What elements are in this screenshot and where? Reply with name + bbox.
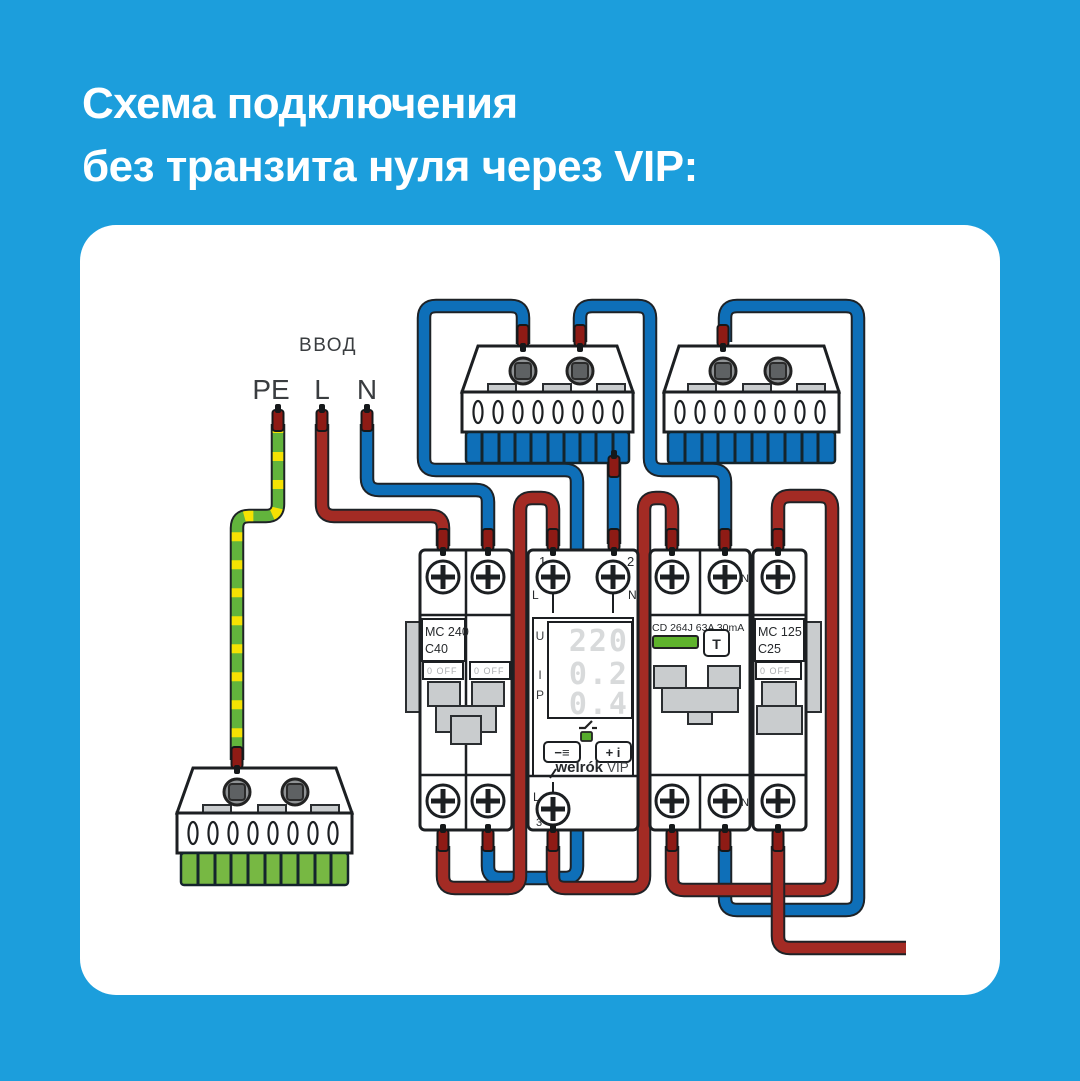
vip-p-label: P bbox=[536, 688, 544, 702]
terminal-screw bbox=[762, 785, 794, 817]
rcd-status-indicator bbox=[653, 636, 698, 648]
poster: Схема подключения без транзита нуля чере… bbox=[0, 0, 1080, 1081]
busbar-screw bbox=[567, 358, 593, 384]
terminal-screw bbox=[656, 561, 688, 593]
terminal-screw bbox=[472, 785, 504, 817]
vip-power-value: 0.4 bbox=[569, 687, 629, 722]
busbar-screw bbox=[224, 779, 250, 805]
breaker-handle bbox=[762, 682, 796, 706]
busbar-screw bbox=[765, 358, 791, 384]
handle-toggle bbox=[451, 716, 481, 744]
rcd-n-top-label: N bbox=[741, 573, 749, 585]
vip-menu-minus-button: −≡ bbox=[554, 745, 569, 760]
pe-busbar bbox=[177, 768, 352, 885]
terminal-screw bbox=[472, 561, 504, 593]
breaker-handle bbox=[428, 682, 460, 706]
breaker-handle bbox=[708, 666, 740, 688]
busbar-screw bbox=[282, 779, 308, 805]
terminal-screw bbox=[537, 561, 569, 593]
handle-toggle bbox=[757, 706, 802, 734]
mc240-off-indicator: 0 OFF bbox=[427, 666, 458, 676]
vip-brand: welrók bbox=[554, 759, 603, 776]
mc125-off-indicator: 0 OFF bbox=[760, 666, 791, 676]
breaker-mc125: MC 125 C25 0 OFF bbox=[753, 550, 806, 830]
vvod-label: ВВОД bbox=[299, 335, 357, 356]
vip-terminal-2-letter: N bbox=[628, 588, 637, 602]
rcd-n-bottom-label: N bbox=[741, 797, 749, 809]
vip-i-label: I bbox=[538, 668, 541, 682]
terminal-screw bbox=[709, 561, 741, 593]
wiring-diagram: ВВОД PE L N bbox=[0, 0, 1080, 1081]
mc240-off-indicator: 0 OFF bbox=[474, 666, 505, 676]
breaker-handle bbox=[472, 682, 504, 706]
busbar-screw bbox=[510, 358, 536, 384]
vip-u-label: U bbox=[536, 629, 545, 643]
rcd-model: CD 264J 63A 30mA bbox=[652, 622, 744, 634]
vip-terminal-2-number: 2 bbox=[627, 554, 634, 569]
mc125-rating: C25 bbox=[758, 642, 781, 656]
vip-device: 1 2 L N 220 0.2 0.4 U I P −≡ + i bbox=[528, 550, 638, 830]
terminal-screw bbox=[597, 561, 629, 593]
rcd-test-button: T bbox=[712, 636, 721, 652]
vip-model: VIP bbox=[607, 760, 629, 775]
neutral-busbar-2 bbox=[664, 346, 839, 463]
terminal-screw bbox=[427, 561, 459, 593]
vip-terminal-3-number: 3 bbox=[536, 817, 542, 829]
mc240-rating: C40 bbox=[425, 642, 448, 656]
l-label: L bbox=[314, 374, 330, 405]
vip-voltage-value: 220 bbox=[569, 624, 629, 659]
neutral-busbar-1 bbox=[462, 346, 633, 463]
rcd-cd264j: N N CD 264J 63A 30mA T bbox=[650, 550, 750, 830]
mc125-model: MC 125 bbox=[758, 625, 802, 639]
handle-tie-bar bbox=[662, 688, 738, 712]
breaker-mc240: MC 240 C40 0 OFF 0 OFF bbox=[420, 550, 512, 830]
terminal-screw bbox=[427, 785, 459, 817]
status-led-icon bbox=[581, 732, 592, 741]
terminal-screw bbox=[656, 785, 688, 817]
busbar-screw bbox=[710, 358, 736, 384]
terminal-screw bbox=[709, 785, 741, 817]
pe-label: PE bbox=[252, 374, 289, 405]
breaker-handle bbox=[654, 666, 686, 688]
n-label: N bbox=[357, 374, 377, 405]
vip-plus-info-button: + i bbox=[606, 745, 621, 760]
vip-terminal-1-letter: L bbox=[532, 588, 539, 602]
handle-toggle bbox=[688, 712, 712, 724]
terminal-screw bbox=[762, 561, 794, 593]
mc240-model: MC 240 bbox=[425, 625, 469, 639]
din-clip-right bbox=[806, 622, 821, 712]
